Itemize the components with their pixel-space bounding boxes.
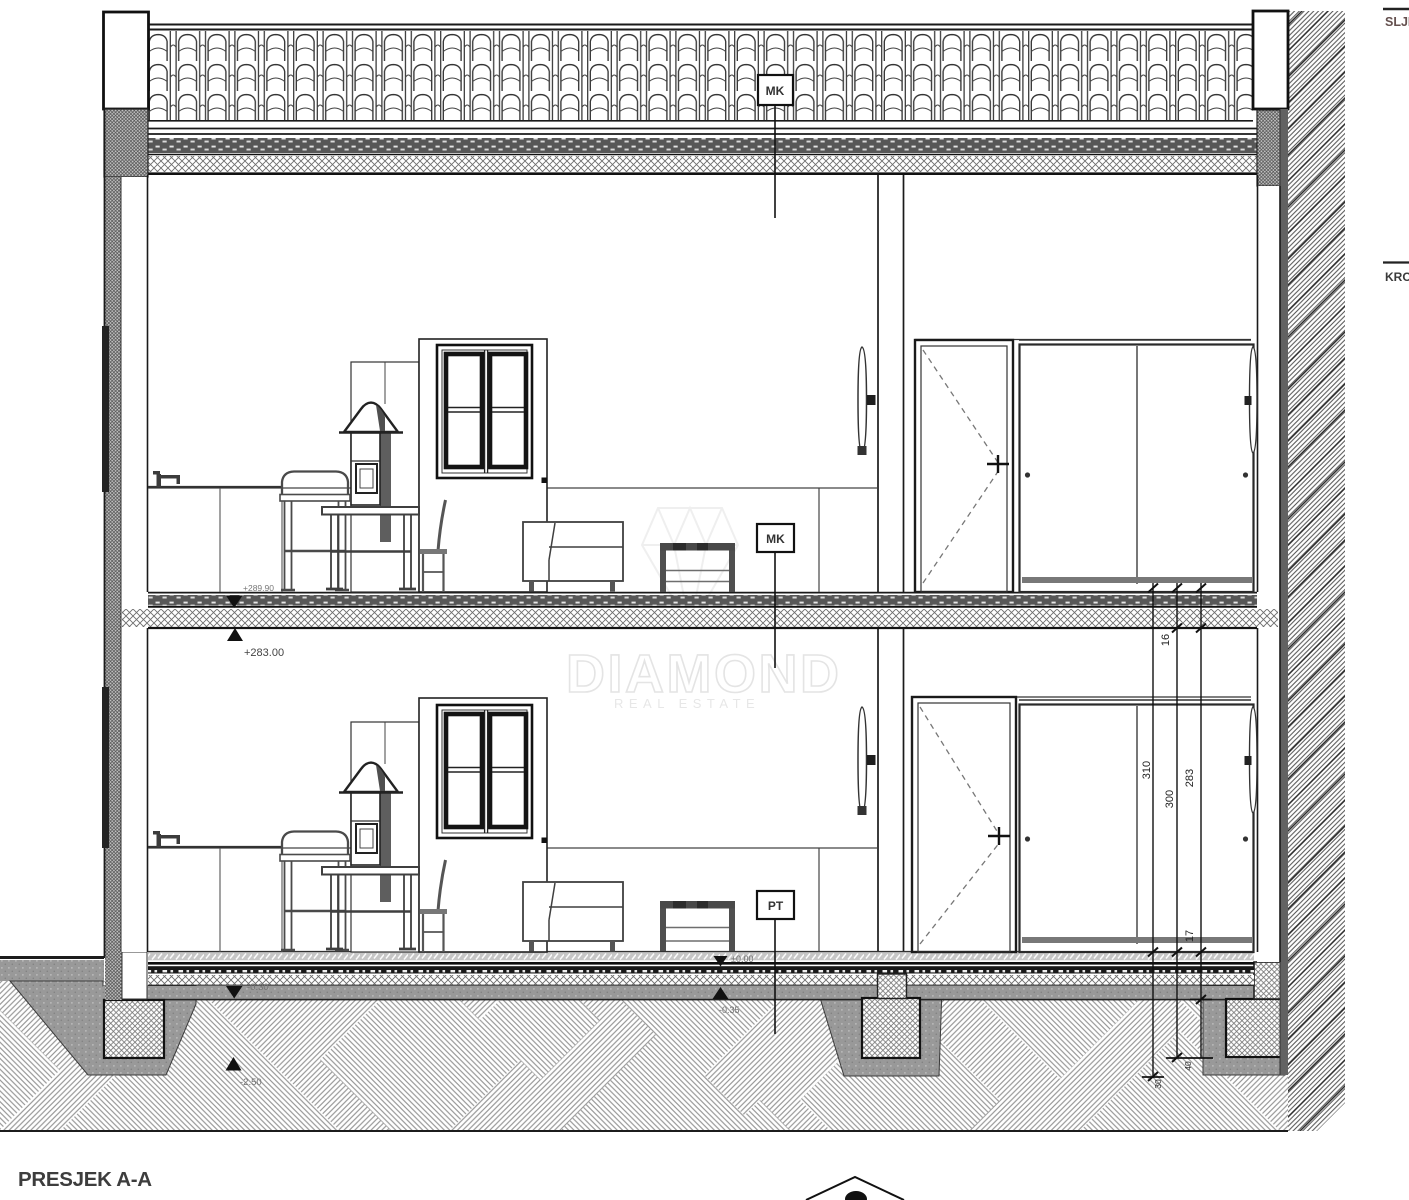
svg-text:-0.35: -0.35 — [719, 1005, 740, 1015]
svg-text:+289.90: +289.90 — [243, 583, 274, 593]
svg-text:40: 40 — [1183, 1061, 1193, 1071]
svg-text:DIAMOND: DIAMOND — [566, 644, 841, 704]
svg-text:310: 310 — [1141, 761, 1153, 779]
svg-text:REAL ESTATE: REAL ESTATE — [614, 696, 760, 711]
svg-text:MK: MK — [766, 532, 785, 546]
svg-text:-2.50: -2.50 — [240, 1077, 262, 1088]
svg-text:283: 283 — [1184, 769, 1196, 787]
svg-text:300: 300 — [1164, 790, 1176, 808]
svg-text:MK: MK — [766, 84, 785, 98]
svg-text:±0.00: ±0.00 — [731, 954, 753, 964]
svg-text:30: 30 — [1153, 1079, 1163, 1089]
svg-text:KROV: KROV — [1385, 270, 1409, 284]
svg-text:+283.00: +283.00 — [244, 647, 284, 659]
svg-text:17: 17 — [1184, 930, 1196, 942]
svg-text:SLJE: SLJE — [1385, 15, 1409, 29]
svg-text:PRESJEK A-A: PRESJEK A-A — [18, 1168, 152, 1191]
svg-text:PT: PT — [768, 899, 784, 913]
svg-text:-0.30: -0.30 — [247, 982, 269, 993]
svg-text:16: 16 — [1160, 634, 1172, 646]
